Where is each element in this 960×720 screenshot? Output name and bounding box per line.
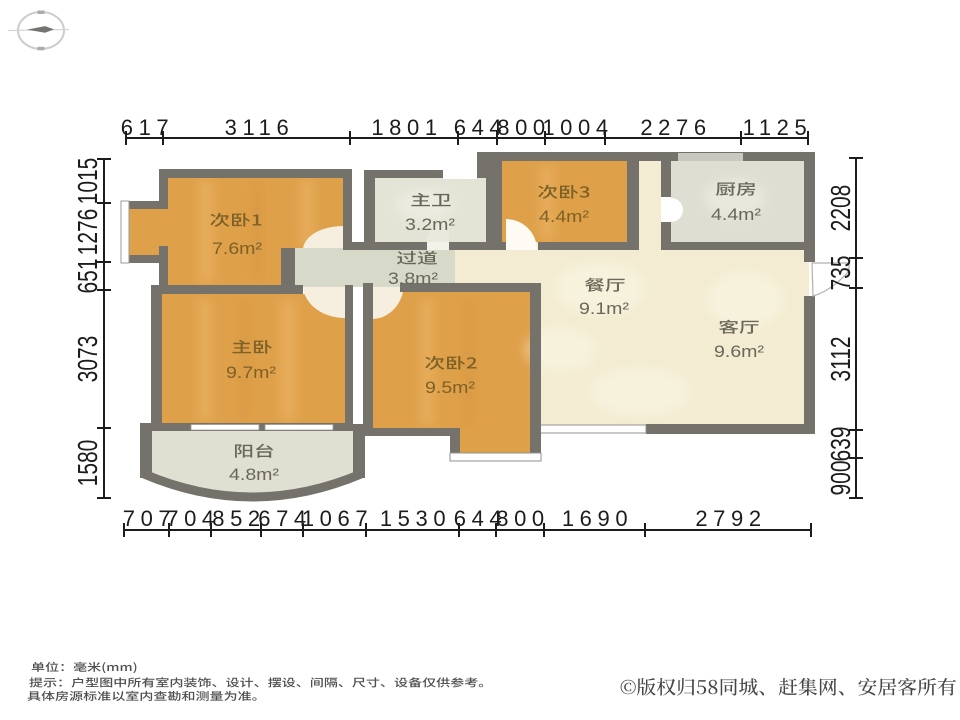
svg-text:1276: 1276	[73, 209, 103, 256]
svg-text:3073: 3073	[73, 336, 103, 383]
svg-text:9.7m²: 9.7m²	[226, 362, 276, 381]
svg-text:1067: 1067	[302, 506, 373, 531]
svg-text:9.5m²: 9.5m²	[425, 377, 475, 396]
svg-text:900: 900	[826, 460, 856, 495]
svg-text:1004: 1004	[542, 115, 613, 140]
svg-text:639: 639	[826, 426, 856, 461]
svg-text:1530: 1530	[380, 506, 451, 531]
svg-text:2208: 2208	[826, 185, 856, 232]
svg-text:3116: 3116	[225, 115, 295, 140]
svg-text:4.4m²: 4.4m²	[539, 206, 589, 225]
svg-text:4.4m²: 4.4m²	[711, 204, 761, 223]
svg-text:1015: 1015	[73, 158, 103, 205]
svg-text:4.8m²: 4.8m²	[229, 464, 279, 483]
svg-text:1801: 1801	[371, 115, 442, 140]
svg-text:651: 651	[73, 258, 103, 293]
svg-text:9.1m²: 9.1m²	[579, 298, 629, 317]
svg-text:1580: 1580	[73, 440, 103, 487]
svg-text:3.8m²: 3.8m²	[388, 268, 438, 287]
svg-text:7.6m²: 7.6m²	[212, 238, 262, 257]
svg-text:3112: 3112	[826, 336, 856, 381]
svg-text:1690: 1690	[562, 506, 633, 531]
svg-text:2276: 2276	[640, 115, 711, 140]
svg-text:1125: 1125	[743, 115, 813, 140]
svg-text:3.2m²: 3.2m²	[405, 214, 455, 233]
svg-text:9.6m²: 9.6m²	[714, 341, 764, 360]
svg-text:2792: 2792	[695, 506, 766, 531]
svg-text:735: 735	[826, 255, 856, 290]
svg-text:617: 617	[121, 115, 175, 140]
svg-text:800: 800	[496, 506, 550, 531]
